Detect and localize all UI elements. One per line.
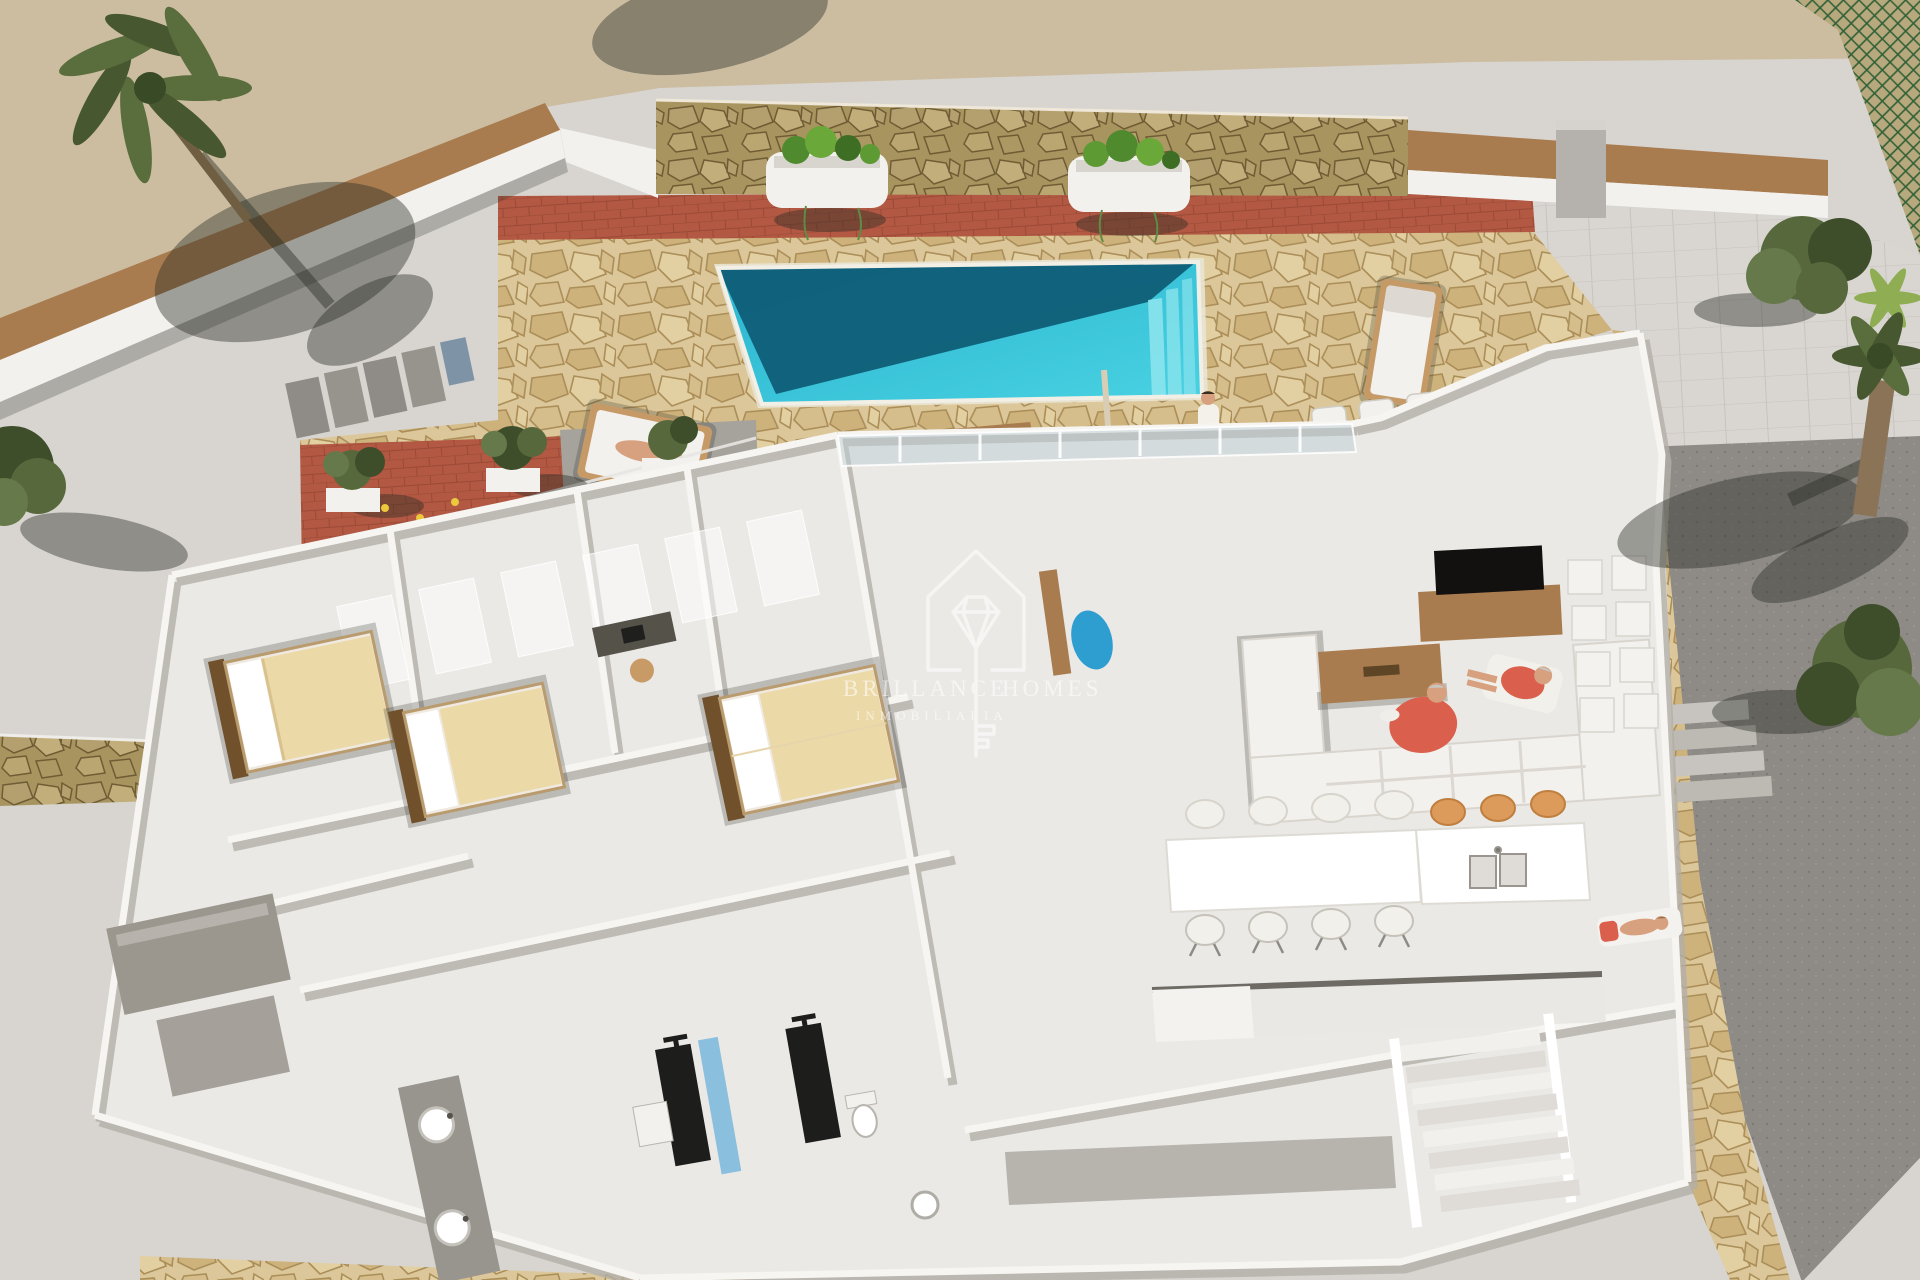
dining-table (1166, 830, 1421, 912)
villa-aerial-render: BRILLANCE HOMES INMOBILIARIA (0, 0, 1920, 1280)
tv-console (1416, 545, 1563, 642)
gate-pillar (1556, 120, 1606, 218)
terracotta-strip (498, 190, 1535, 240)
render-canvas: BRILLANCE HOMES INMOBILIARIA (0, 0, 1920, 1280)
round-basin (912, 1192, 938, 1218)
tv-screen (1434, 545, 1544, 595)
kitchen-island (1416, 791, 1590, 904)
bath-vanity (633, 1101, 673, 1146)
swimming-pool (714, 258, 1208, 408)
watermark-subtitle: INMOBILIARIA (856, 708, 1008, 723)
watermark-brand-left: BRILLANCE (843, 676, 1008, 701)
tall-cabinet (1152, 986, 1254, 1042)
watermark-brand-right: HOMES (1002, 676, 1103, 701)
